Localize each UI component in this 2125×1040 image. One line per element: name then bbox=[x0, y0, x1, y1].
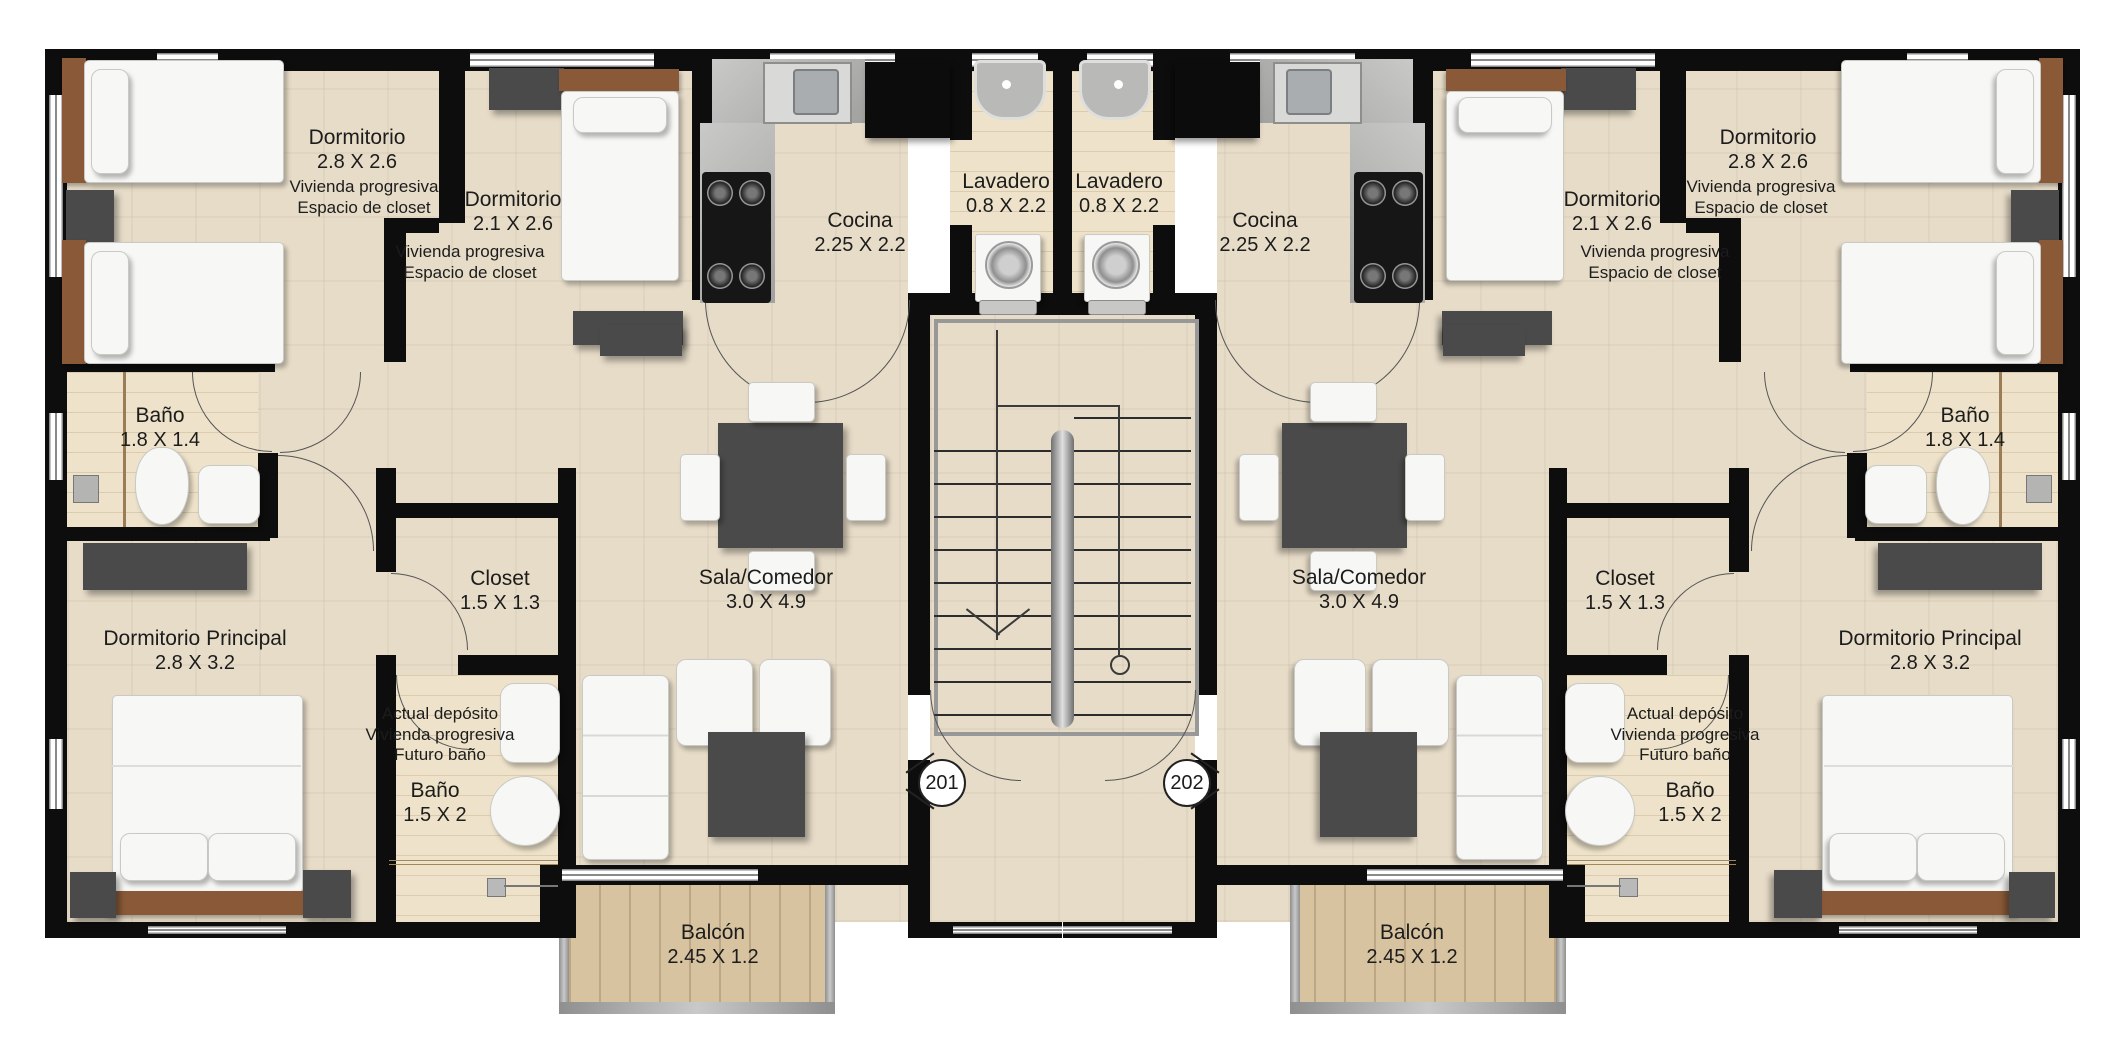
stair-path-up bbox=[1118, 405, 1120, 655]
room-name: Balcón bbox=[633, 920, 793, 945]
door-number-201: 201 bbox=[918, 759, 966, 807]
stair-stringer bbox=[1051, 430, 1074, 728]
stair-path-down bbox=[996, 330, 998, 640]
stair-path-end-circle bbox=[1110, 655, 1130, 675]
door-number-text: 201 bbox=[925, 772, 958, 795]
room-dims: 2.45 X 1.2 bbox=[633, 945, 793, 969]
room-label-balcon: Balcón 2.45 X 1.2 bbox=[633, 920, 793, 969]
stair-flight-right bbox=[1074, 417, 1191, 717]
stair-flight-left bbox=[934, 450, 1051, 717]
stair-hall: 201 202 bbox=[0, 0, 2125, 1040]
floor-plan: Dormitorio 2.8 X 2.6 Vivienda progresiva… bbox=[0, 0, 2125, 1040]
door-number-202: 202 bbox=[1163, 759, 1211, 807]
door-number-text: 202 bbox=[1170, 772, 1203, 795]
stair-path-top bbox=[996, 405, 1120, 407]
